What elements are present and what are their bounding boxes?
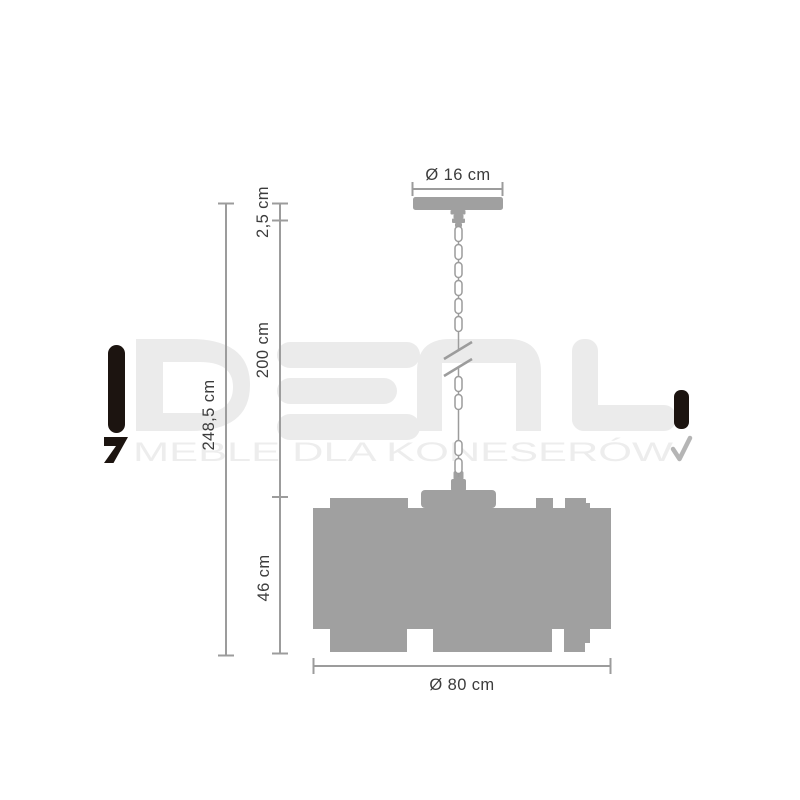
watermark-arrow-seven — [104, 437, 128, 463]
shade-hub — [421, 490, 496, 508]
watermark-check-icon — [673, 438, 690, 459]
ceiling-plate — [413, 197, 503, 210]
dim-line-canopy-diameter — [413, 182, 503, 196]
brand-letter-d — [136, 339, 250, 431]
watermark-logo: MEBLE DLA KONESERÓW — [104, 339, 690, 467]
dim-line-shade-diameter — [314, 658, 611, 674]
label-total-height: 248,5 cm — [200, 379, 218, 450]
dim-line-total-height — [218, 204, 234, 656]
brand-letter-l — [572, 339, 676, 431]
ceiling-connector — [451, 210, 466, 227]
brand-letter-e — [277, 342, 420, 440]
shade-bottom-rim — [330, 629, 590, 652]
label-canopy-diameter: Ø 16 cm — [425, 166, 490, 184]
brand-letter-i — [108, 345, 125, 433]
label-shade-height: 46 cm — [255, 555, 273, 602]
drum-shade — [313, 508, 611, 629]
label-chain-length: 200 cm — [254, 322, 272, 379]
brand-letter-l-end — [674, 390, 689, 429]
label-canopy-height: 2,5 cm — [254, 186, 272, 238]
label-shade-diameter: Ø 80 cm — [429, 676, 494, 694]
diagram-canvas: MEBLE DLA KONESERÓW — [0, 0, 800, 800]
product-dimension-diagram: MEBLE DLA KONESERÓW — [0, 0, 800, 800]
brand-letter-a — [417, 339, 541, 431]
